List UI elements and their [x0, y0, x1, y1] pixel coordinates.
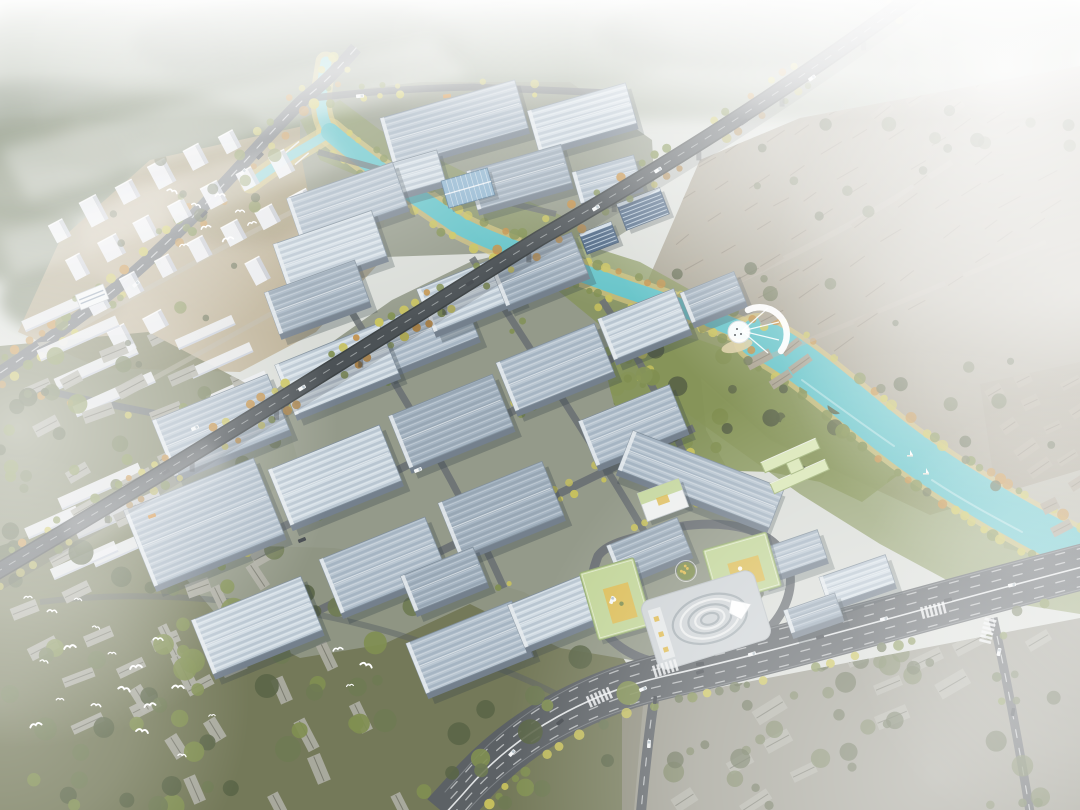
aerial-render-stage — [0, 0, 1080, 810]
masterplan-rendering — [0, 0, 1080, 810]
fog-haze — [0, 0, 1080, 810]
